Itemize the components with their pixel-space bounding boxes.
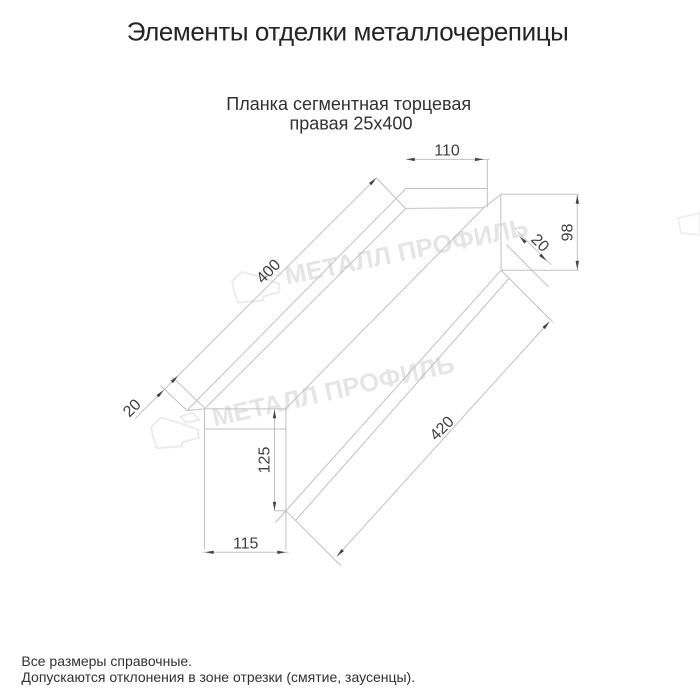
svg-text:Планка сегментная торцевая: Планка сегментная торцевая [226,94,471,114]
svg-text:98: 98 [560,224,577,242]
svg-text:правая 25х400: правая 25х400 [290,114,413,134]
svg-text:115: 115 [233,535,259,552]
svg-text:Все размеры справочные.: Все размеры справочные. [21,653,192,669]
svg-text:Элементы отделки металлочерепи: Элементы отделки металлочерепицы [127,16,569,46]
svg-text:Допускаются отклонения в зоне: Допускаются отклонения в зоне отрезки (с… [21,669,415,685]
svg-text:125: 125 [257,447,274,474]
svg-text:110: 110 [434,143,460,160]
